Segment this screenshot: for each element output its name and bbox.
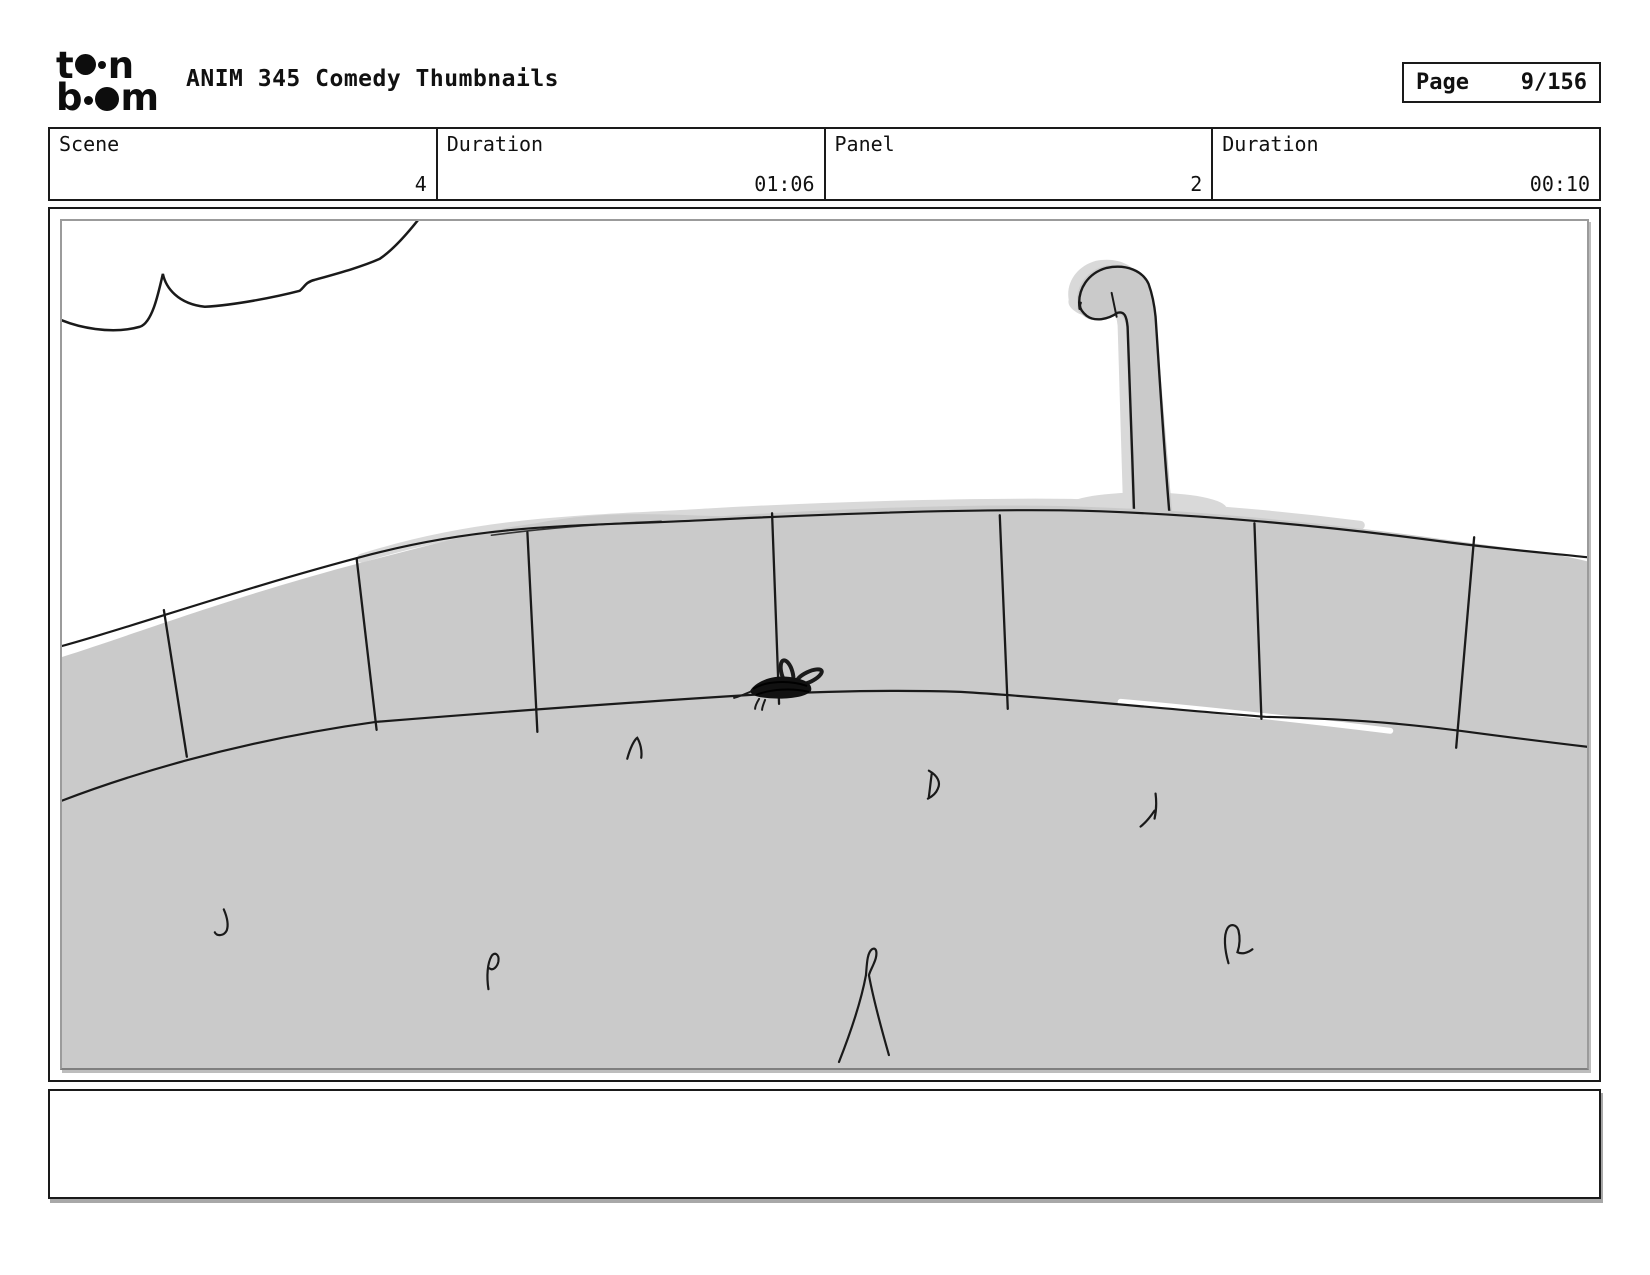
page-number-box: Page 9/156	[1402, 62, 1601, 103]
logo-o-disc-icon	[75, 54, 96, 75]
info-cell-panel-duration: Duration 00:10	[1213, 129, 1599, 199]
storyboard-panel-drawing-area	[60, 219, 1589, 1070]
panel-duration-label: Duration	[1222, 132, 1318, 156]
scene-duration-value: 01:06	[754, 172, 814, 196]
info-cell-panel: Panel 2	[826, 129, 1214, 199]
info-cell-scene-duration: Duration 01:06	[438, 129, 826, 199]
scene-label: Scene	[59, 132, 119, 156]
panel-value: 2	[1190, 172, 1202, 196]
logo-o-dot-icon	[98, 61, 106, 69]
logo-o-disc-icon	[95, 87, 119, 111]
project-title: ANIM 345 Comedy Thumbnails	[186, 66, 559, 92]
logo-letter-m: m	[121, 84, 158, 112]
toonboom-logo: t n b m	[56, 50, 176, 113]
panel-drawing	[62, 221, 1587, 1068]
panel-label: Panel	[835, 132, 895, 156]
panel-duration-value: 00:10	[1530, 172, 1590, 196]
logo-o-dot-icon	[84, 96, 93, 105]
caption-box	[48, 1089, 1601, 1199]
toonboom-logo-row2: b m	[56, 82, 176, 113]
mound	[62, 505, 1587, 1068]
scene-duration-label: Duration	[447, 132, 543, 156]
scene-value: 4	[415, 172, 427, 196]
cloud-sketch	[62, 221, 427, 330]
shot-info-row: Scene 4 Duration 01:06 Panel 2 Duration …	[48, 127, 1601, 201]
page-value: 9/156	[1521, 70, 1587, 95]
storyboard-page: t n b m ANIM 345 Comedy Thumbnails Page …	[0, 0, 1650, 1275]
page-label: Page	[1416, 70, 1469, 95]
storyboard-panel-frame	[48, 207, 1601, 1082]
info-cell-scene: Scene 4	[50, 129, 438, 199]
logo-letter-b: b	[56, 84, 81, 112]
